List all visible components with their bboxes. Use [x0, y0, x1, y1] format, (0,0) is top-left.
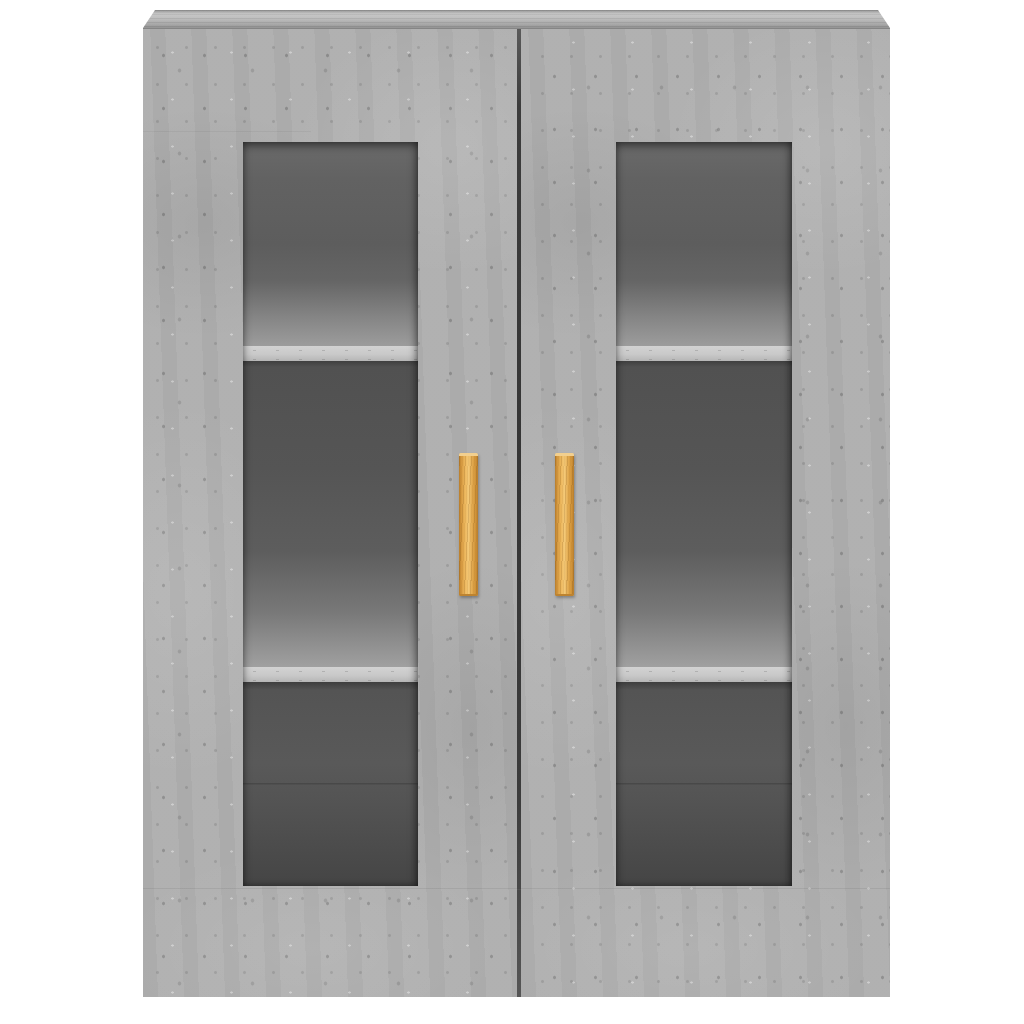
cabinet-top-surface — [143, 10, 890, 28]
left-door-wooden-handle — [459, 453, 478, 596]
product-photo-scene — [0, 0, 1024, 1024]
right-interior-section-bottom — [616, 682, 792, 886]
right-shelf-edge-upper — [616, 346, 792, 361]
door-gap-seam — [517, 29, 521, 997]
right-interior-section-middle — [616, 361, 792, 667]
left-shelf-edge-lower — [243, 667, 418, 682]
left-shelf-edge-upper — [243, 346, 418, 361]
cabinet-front — [143, 28, 890, 997]
right-door-glass-window — [616, 142, 792, 886]
left-interior-section-middle — [243, 361, 418, 667]
left-door-glass-window — [243, 142, 418, 886]
right-door-wooden-handle — [555, 453, 574, 596]
left-interior-section-bottom — [243, 682, 418, 886]
left-interior-section-top — [243, 142, 418, 346]
right-shelf-edge-lower — [616, 667, 792, 682]
right-interior-section-top — [616, 142, 792, 346]
wall-cabinet — [143, 10, 890, 997]
